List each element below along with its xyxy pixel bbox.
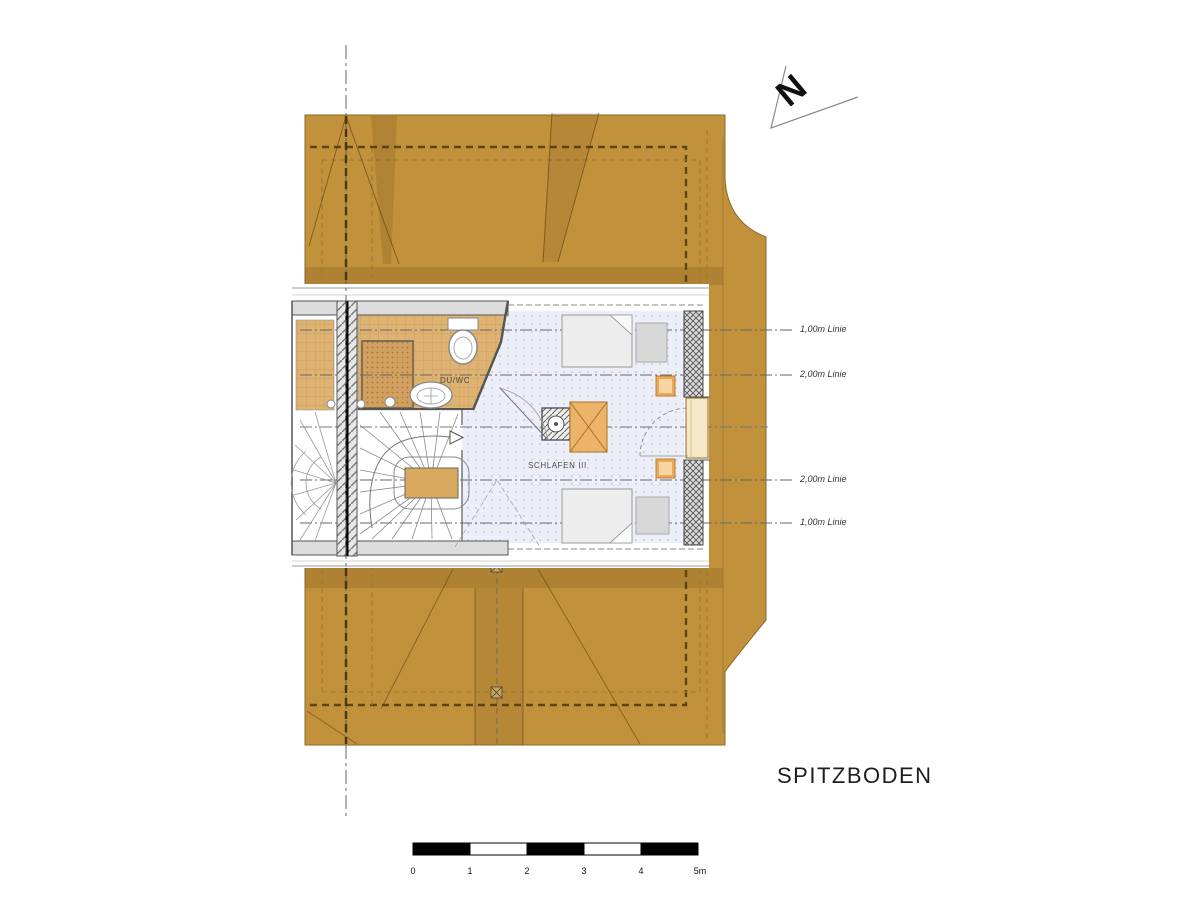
roof-bottom-dark-band [305, 568, 723, 588]
gable-wall-lower [684, 460, 703, 545]
door-stop-neighbor [327, 400, 335, 408]
page-title: SPITZBODEN [777, 763, 933, 789]
dimension-line-label-3: 2,00m Linie [800, 474, 847, 484]
floor-plan-drawing: N [0, 0, 1200, 900]
bathroom-label: DU/WC [440, 376, 470, 385]
floor-drain [385, 397, 395, 407]
dimension-line-label-2: 2,00m Linie [800, 369, 847, 379]
floor-plan-page: N DU/WC SCHLAFEN III 1,00m Linie 2,00m L… [0, 0, 1200, 900]
north-arrow-icon: N [768, 66, 858, 128]
bottom-wall [292, 541, 508, 555]
dimension-line-label-4: 1,00m Linie [800, 517, 847, 527]
scale-tick-3: 3 [581, 866, 586, 876]
top-wall [292, 301, 508, 315]
roof-top-dark-band [305, 267, 723, 285]
north-arrow-letter: N [768, 66, 814, 114]
newel-post [405, 468, 458, 498]
bed-2-side-table [636, 497, 669, 534]
chimney [542, 408, 570, 440]
scale-tick-2: 2 [524, 866, 529, 876]
scale-tick-5: 5m [694, 866, 707, 876]
door-stop [357, 400, 365, 408]
dimension-line-label-1: 1,00m Linie [800, 324, 847, 334]
nightstand-1 [656, 376, 675, 396]
bed-1 [562, 315, 632, 367]
scale-tick-1: 1 [467, 866, 472, 876]
scale-bar [413, 843, 698, 855]
bed-1-side-table [636, 323, 667, 362]
sink [410, 382, 452, 408]
table [570, 402, 607, 452]
bed-2 [562, 489, 632, 543]
neighbor-bathroom-floor [296, 320, 334, 410]
nightstand-2 [656, 459, 675, 478]
scale-tick-4: 4 [638, 866, 643, 876]
bedroom-label: SCHLAFEN III [528, 461, 587, 470]
gable-wall-upper [684, 311, 703, 397]
toilet [448, 318, 478, 364]
scale-tick-0: 0 [410, 866, 415, 876]
